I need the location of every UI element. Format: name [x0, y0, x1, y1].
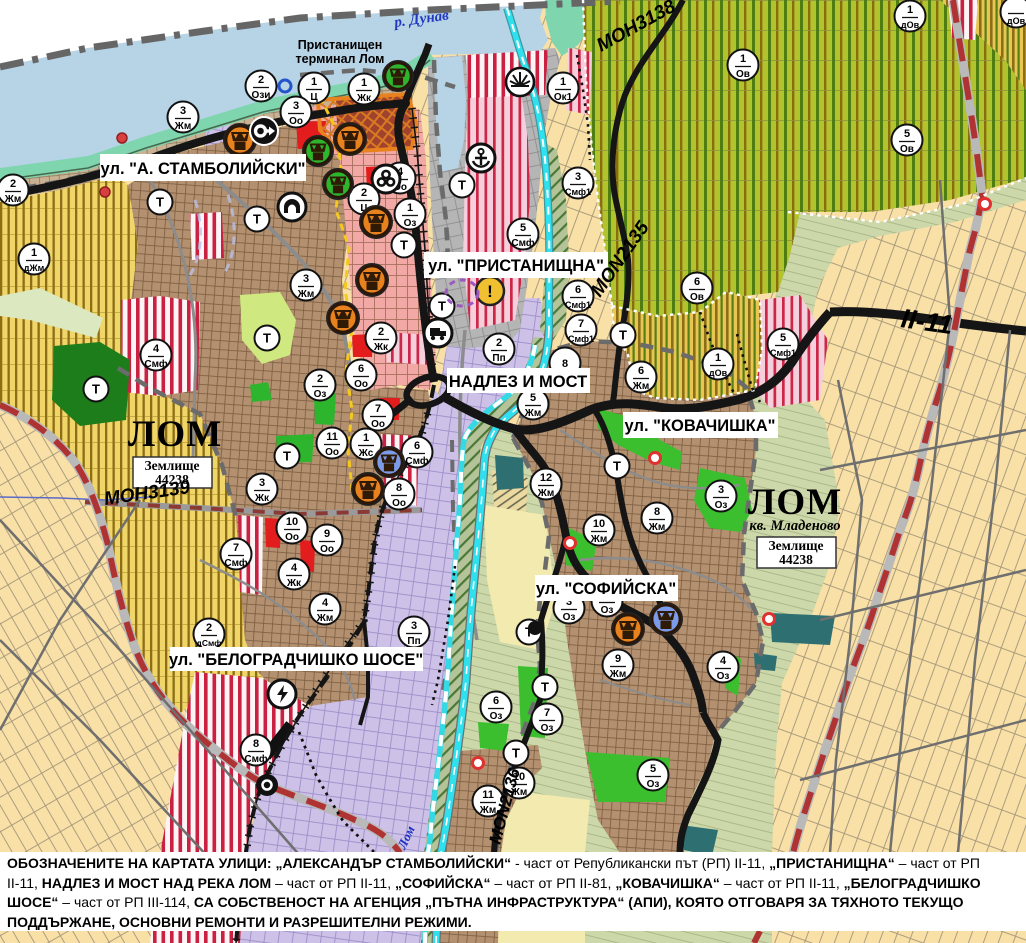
svg-text:Оз: Оз: [490, 711, 503, 722]
svg-text:5: 5: [520, 222, 526, 234]
svg-text:дЖм: дЖм: [24, 263, 45, 273]
svg-text:Т: Т: [512, 746, 520, 761]
svg-text:Т: Т: [438, 299, 446, 314]
svg-text:дОв: дОв: [901, 20, 920, 30]
svg-text:Т: Т: [263, 331, 271, 346]
svg-text:Смф: Смф: [224, 557, 247, 569]
svg-text:5: 5: [904, 128, 910, 140]
svg-text:Т: Т: [92, 382, 100, 397]
svg-text:Оо: Оо: [354, 379, 368, 390]
svg-text:Ов: Ов: [690, 292, 704, 303]
svg-text:ЛОМ: ЛОМ: [748, 482, 842, 523]
svg-text:Землище: Землище: [768, 538, 823, 553]
svg-text:1: 1: [560, 76, 566, 88]
svg-text:12: 12: [540, 472, 552, 484]
svg-text:Оо: Оо: [289, 116, 303, 127]
svg-text:Ов: Ов: [900, 144, 914, 155]
svg-text:Жм: Жм: [632, 381, 649, 392]
svg-text:Жм: Жм: [316, 613, 333, 624]
svg-text:Оо: Оо: [325, 447, 339, 458]
svg-text:1: 1: [363, 432, 369, 444]
svg-text:Жк: Жк: [356, 93, 372, 104]
svg-text:2: 2: [206, 622, 212, 634]
svg-text:Жм: Жм: [4, 194, 21, 205]
svg-text:дОв: дОв: [1007, 16, 1026, 26]
svg-text:Оз: Оз: [717, 671, 730, 682]
svg-text:Жм: Жм: [590, 534, 607, 545]
svg-text:3: 3: [411, 620, 417, 632]
svg-text:Оз: Оз: [404, 218, 417, 229]
svg-text:Пристанищен: Пристанищен: [298, 38, 383, 52]
svg-text:3: 3: [718, 484, 724, 496]
svg-text:1: 1: [715, 352, 721, 364]
svg-text:1: 1: [907, 4, 913, 16]
svg-text:Оз: Оз: [601, 605, 614, 616]
svg-text:Жм: Жм: [537, 488, 554, 499]
svg-text:Смф: Смф: [511, 237, 534, 249]
svg-text:5: 5: [780, 332, 786, 344]
svg-text:Смф: Смф: [405, 455, 428, 467]
svg-text:1: 1: [361, 77, 367, 89]
svg-text:2: 2: [378, 326, 384, 338]
svg-text:НАДЛЕЗ И МОСТ: НАДЛЕЗ И МОСТ: [449, 373, 587, 391]
svg-text:6: 6: [575, 284, 581, 296]
svg-text:Оо: Оо: [285, 532, 299, 543]
svg-text:Пп: Пп: [492, 353, 505, 364]
svg-text:44238: 44238: [779, 552, 813, 567]
svg-text:Т: Т: [253, 212, 261, 227]
svg-text:6: 6: [638, 365, 644, 377]
svg-text:Жс: Жс: [358, 448, 374, 459]
svg-text:4: 4: [720, 655, 727, 667]
svg-text:1: 1: [740, 53, 746, 65]
svg-text:Жм: Жм: [524, 408, 541, 419]
svg-text:3: 3: [293, 100, 299, 112]
svg-text:Оз: Оз: [314, 389, 327, 400]
svg-text:4: 4: [291, 562, 298, 574]
svg-text:3: 3: [180, 105, 186, 117]
svg-text:8: 8: [253, 738, 259, 750]
svg-text:2: 2: [496, 337, 502, 349]
svg-text:9: 9: [324, 528, 330, 540]
svg-text:Ц: Ц: [310, 92, 318, 103]
svg-text:ул. "КОВАЧИШКА": ул. "КОВАЧИШКА": [625, 417, 776, 435]
svg-text:4: 4: [153, 343, 160, 355]
svg-text:9: 9: [615, 653, 621, 665]
svg-text:Оо: Оо: [320, 544, 334, 555]
svg-text:2: 2: [317, 373, 323, 385]
svg-text:Жм: Жм: [174, 121, 191, 132]
svg-text:5: 5: [650, 763, 656, 775]
svg-text:Жк: Жк: [286, 578, 302, 589]
svg-text:Оо: Оо: [371, 419, 385, 430]
svg-text:7: 7: [544, 707, 550, 719]
svg-text:Оз: Оз: [563, 612, 576, 623]
svg-text:Жм: Жм: [648, 522, 665, 533]
svg-text:Пп: Пп: [407, 636, 420, 647]
svg-text:кв. Младеново: кв. Младеново: [749, 518, 840, 534]
svg-text:6: 6: [493, 695, 499, 707]
svg-text:Жк: Жк: [254, 493, 270, 504]
svg-text:Т: Т: [619, 328, 627, 343]
svg-text:8: 8: [396, 482, 402, 494]
svg-text:5: 5: [530, 392, 536, 404]
svg-text:терминал Лом: терминал Лом: [296, 52, 385, 66]
svg-text:7: 7: [233, 542, 239, 554]
svg-text:Землище: Землище: [144, 458, 199, 473]
svg-text:Ов: Ов: [736, 69, 750, 80]
svg-text:Т: Т: [156, 195, 164, 210]
svg-text:Смф1: Смф1: [770, 348, 796, 358]
svg-text:3: 3: [259, 477, 265, 489]
svg-text:Жм: Жм: [609, 669, 626, 680]
svg-text:7: 7: [375, 403, 381, 415]
svg-text:6: 6: [358, 363, 364, 375]
svg-text:Смф1: Смф1: [565, 300, 591, 310]
svg-text:2: 2: [361, 187, 367, 199]
svg-text:11: 11: [482, 789, 494, 801]
svg-text:3: 3: [303, 273, 309, 285]
svg-text:1: 1: [407, 202, 413, 214]
svg-text:6: 6: [414, 440, 420, 452]
svg-text:7: 7: [578, 318, 584, 330]
svg-text:11: 11: [326, 431, 338, 443]
svg-text:Т: Т: [458, 178, 466, 193]
svg-text:дОв: дОв: [709, 368, 728, 378]
svg-text:10: 10: [593, 518, 605, 530]
svg-text:Смф: Смф: [244, 753, 267, 765]
svg-text:Смф: Смф: [144, 358, 167, 370]
svg-text:Оз: Оз: [541, 723, 554, 734]
svg-text:10: 10: [286, 516, 298, 528]
svg-text:!: !: [487, 282, 493, 301]
svg-text:Т: Т: [400, 238, 408, 253]
svg-text:Ози: Ози: [252, 90, 271, 101]
svg-text:Оз: Оз: [715, 500, 728, 511]
svg-text:1: 1: [31, 247, 37, 259]
svg-text:ул. "БЕЛОГРАДЧИШКО ШОСЕ": ул. "БЕЛОГРАДЧИШКО ШОСЕ": [169, 651, 423, 669]
svg-text:Т: Т: [541, 680, 549, 695]
svg-text:2: 2: [10, 178, 16, 190]
svg-text:дСмф: дСмф: [196, 638, 222, 648]
svg-text:ул. "СОФИЙСКА": ул. "СОФИЙСКА": [536, 579, 676, 598]
svg-text:8: 8: [654, 506, 660, 518]
svg-text:4: 4: [322, 597, 329, 609]
svg-text:ул. "ПРИСТАНИЩНА": ул. "ПРИСТАНИЩНА": [428, 257, 604, 275]
svg-text:1: 1: [311, 76, 317, 88]
svg-text:Оз: Оз: [647, 779, 660, 790]
svg-text:2: 2: [258, 74, 264, 86]
svg-text:Т: Т: [613, 459, 621, 474]
svg-text:ЛОМ: ЛОМ: [128, 414, 222, 455]
svg-text:ул. "А. СТАМБОЛИЙСКИ": ул. "А. СТАМБОЛИЙСКИ": [101, 159, 306, 178]
svg-text:Жк: Жк: [373, 342, 389, 353]
svg-text:6: 6: [694, 276, 700, 288]
svg-text:Оо: Оо: [392, 498, 406, 509]
svg-text:3: 3: [575, 171, 581, 183]
svg-text:Смф1: Смф1: [565, 187, 591, 197]
svg-text:Смф1: Смф1: [568, 334, 594, 344]
svg-text:Жм: Жм: [297, 289, 314, 300]
svg-text:Ок1: Ок1: [554, 92, 573, 103]
svg-text:Т: Т: [283, 449, 291, 464]
